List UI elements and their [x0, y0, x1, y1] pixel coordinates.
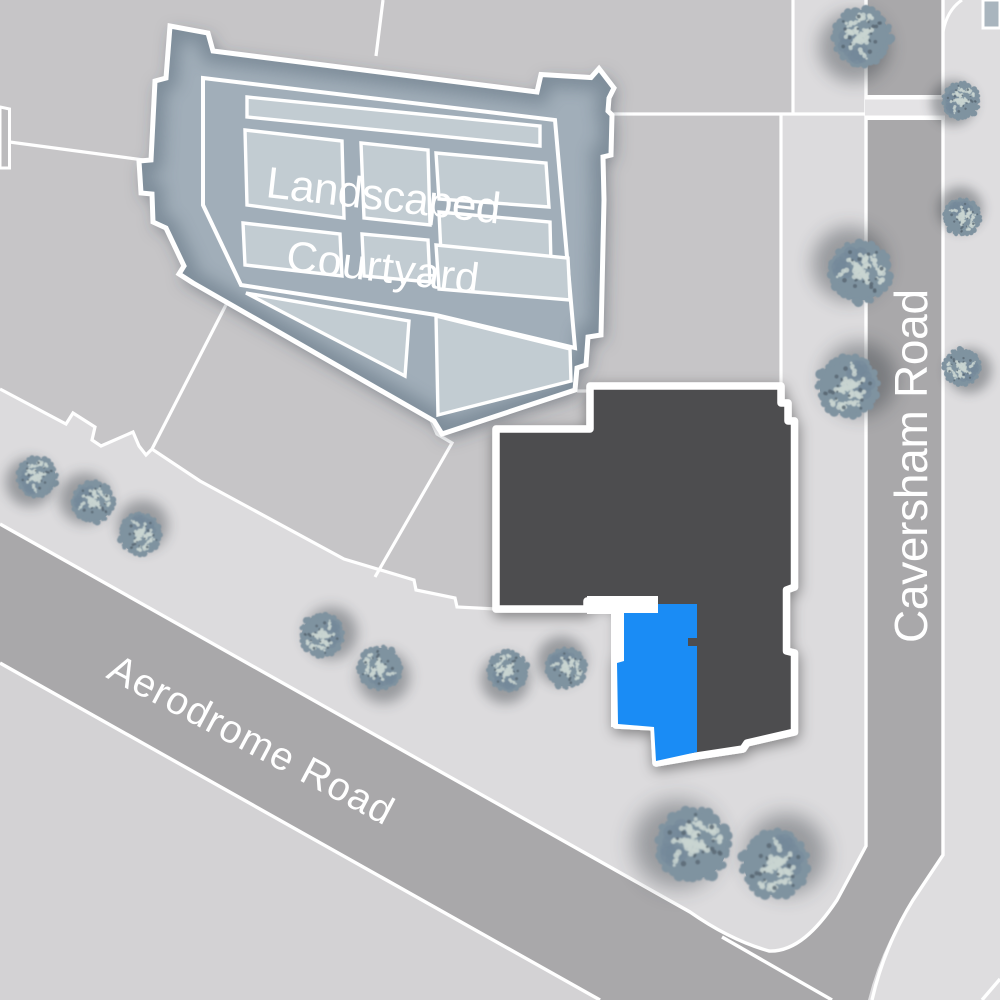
svg-text:Caversham Road: Caversham Road: [885, 289, 937, 643]
